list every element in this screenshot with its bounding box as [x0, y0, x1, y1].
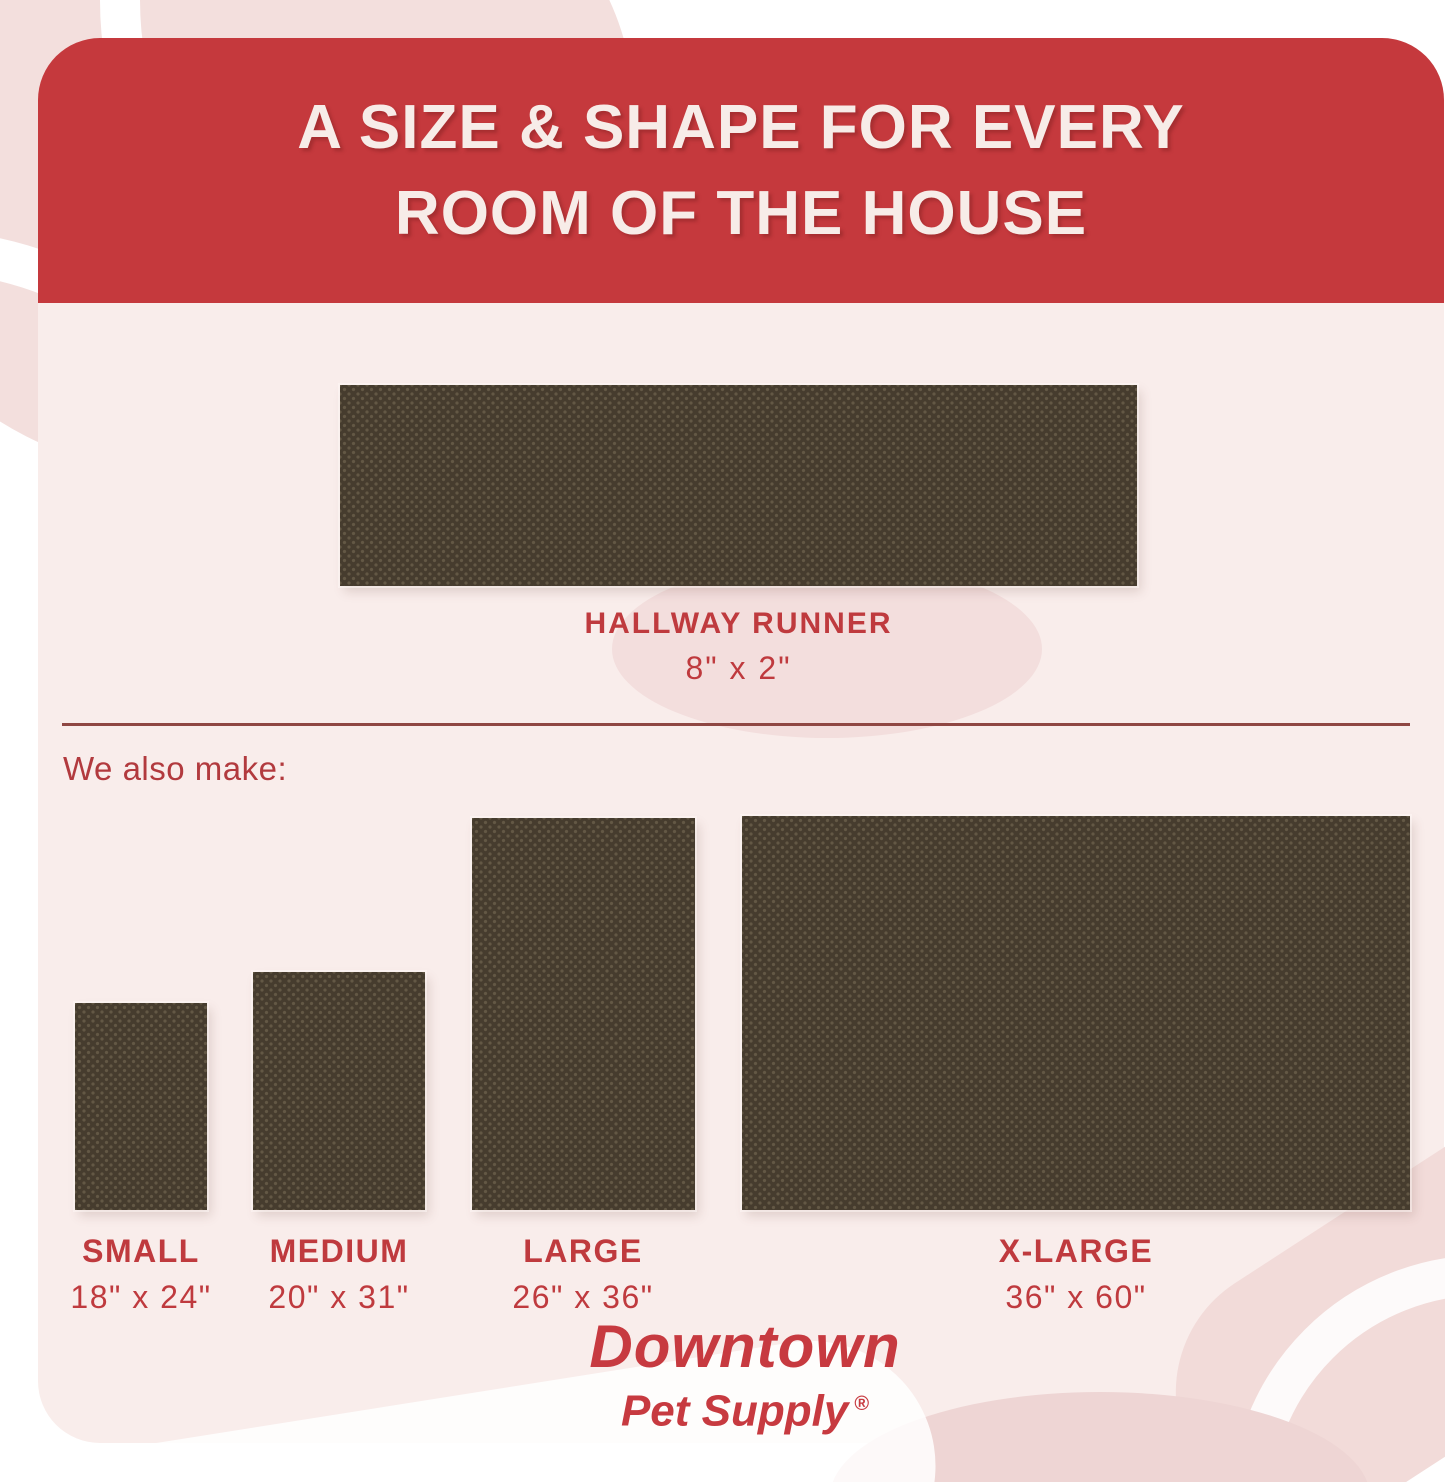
divider-line: [62, 723, 1410, 726]
brand-logo: Downtown Pet Supply®: [395, 1316, 1095, 1436]
hallway-runner-caption: HALLWAY RUNNER 8" x 2": [340, 602, 1137, 690]
mat-label-large: LARGE: [453, 1230, 713, 1272]
brand-name: Downtown: [395, 1316, 1095, 1378]
page-title: A SIZE & SHAPE FOR EVERY ROOM OF THE HOU…: [297, 85, 1185, 257]
mat-swatch-medium: [253, 972, 425, 1210]
mat-size-x-large: 36" x 60": [946, 1276, 1206, 1318]
registered-trademark-symbol: ®: [854, 1393, 869, 1415]
mat-size-large: 26" x 36": [453, 1276, 713, 1318]
mat-swatch-x-large: [742, 816, 1410, 1210]
mat-caption-x-large: X-LARGE 36" x 60": [946, 1230, 1206, 1318]
mat-size-medium: 20" x 31": [209, 1276, 469, 1318]
hallway-runner-label: HALLWAY RUNNER: [340, 602, 1137, 646]
mat-caption-medium: MEDIUM 20" x 31": [209, 1230, 469, 1318]
mat-caption-large: LARGE 26" x 36": [453, 1230, 713, 1318]
header-banner: A SIZE & SHAPE FOR EVERY ROOM OF THE HOU…: [38, 38, 1444, 303]
hallway-runner-size: 8" x 2": [340, 646, 1137, 690]
mat-swatch-hallway-runner: [340, 385, 1137, 586]
page-title-line1: A SIZE & SHAPE FOR EVERY: [297, 85, 1185, 171]
we-also-make-note: We also make:: [63, 750, 287, 788]
mat-swatch-large: [472, 818, 695, 1210]
mat-label-medium: MEDIUM: [209, 1230, 469, 1272]
page-title-line2: ROOM OF THE HOUSE: [297, 171, 1185, 257]
infographic-page: A SIZE & SHAPE FOR EVERY ROOM OF THE HOU…: [0, 0, 1445, 1482]
brand-tagline-text: Pet Supply: [621, 1387, 848, 1436]
brand-tagline: Pet Supply®: [395, 1380, 1095, 1436]
mat-label-x-large: X-LARGE: [946, 1230, 1206, 1272]
mat-swatch-small: [75, 1003, 207, 1210]
